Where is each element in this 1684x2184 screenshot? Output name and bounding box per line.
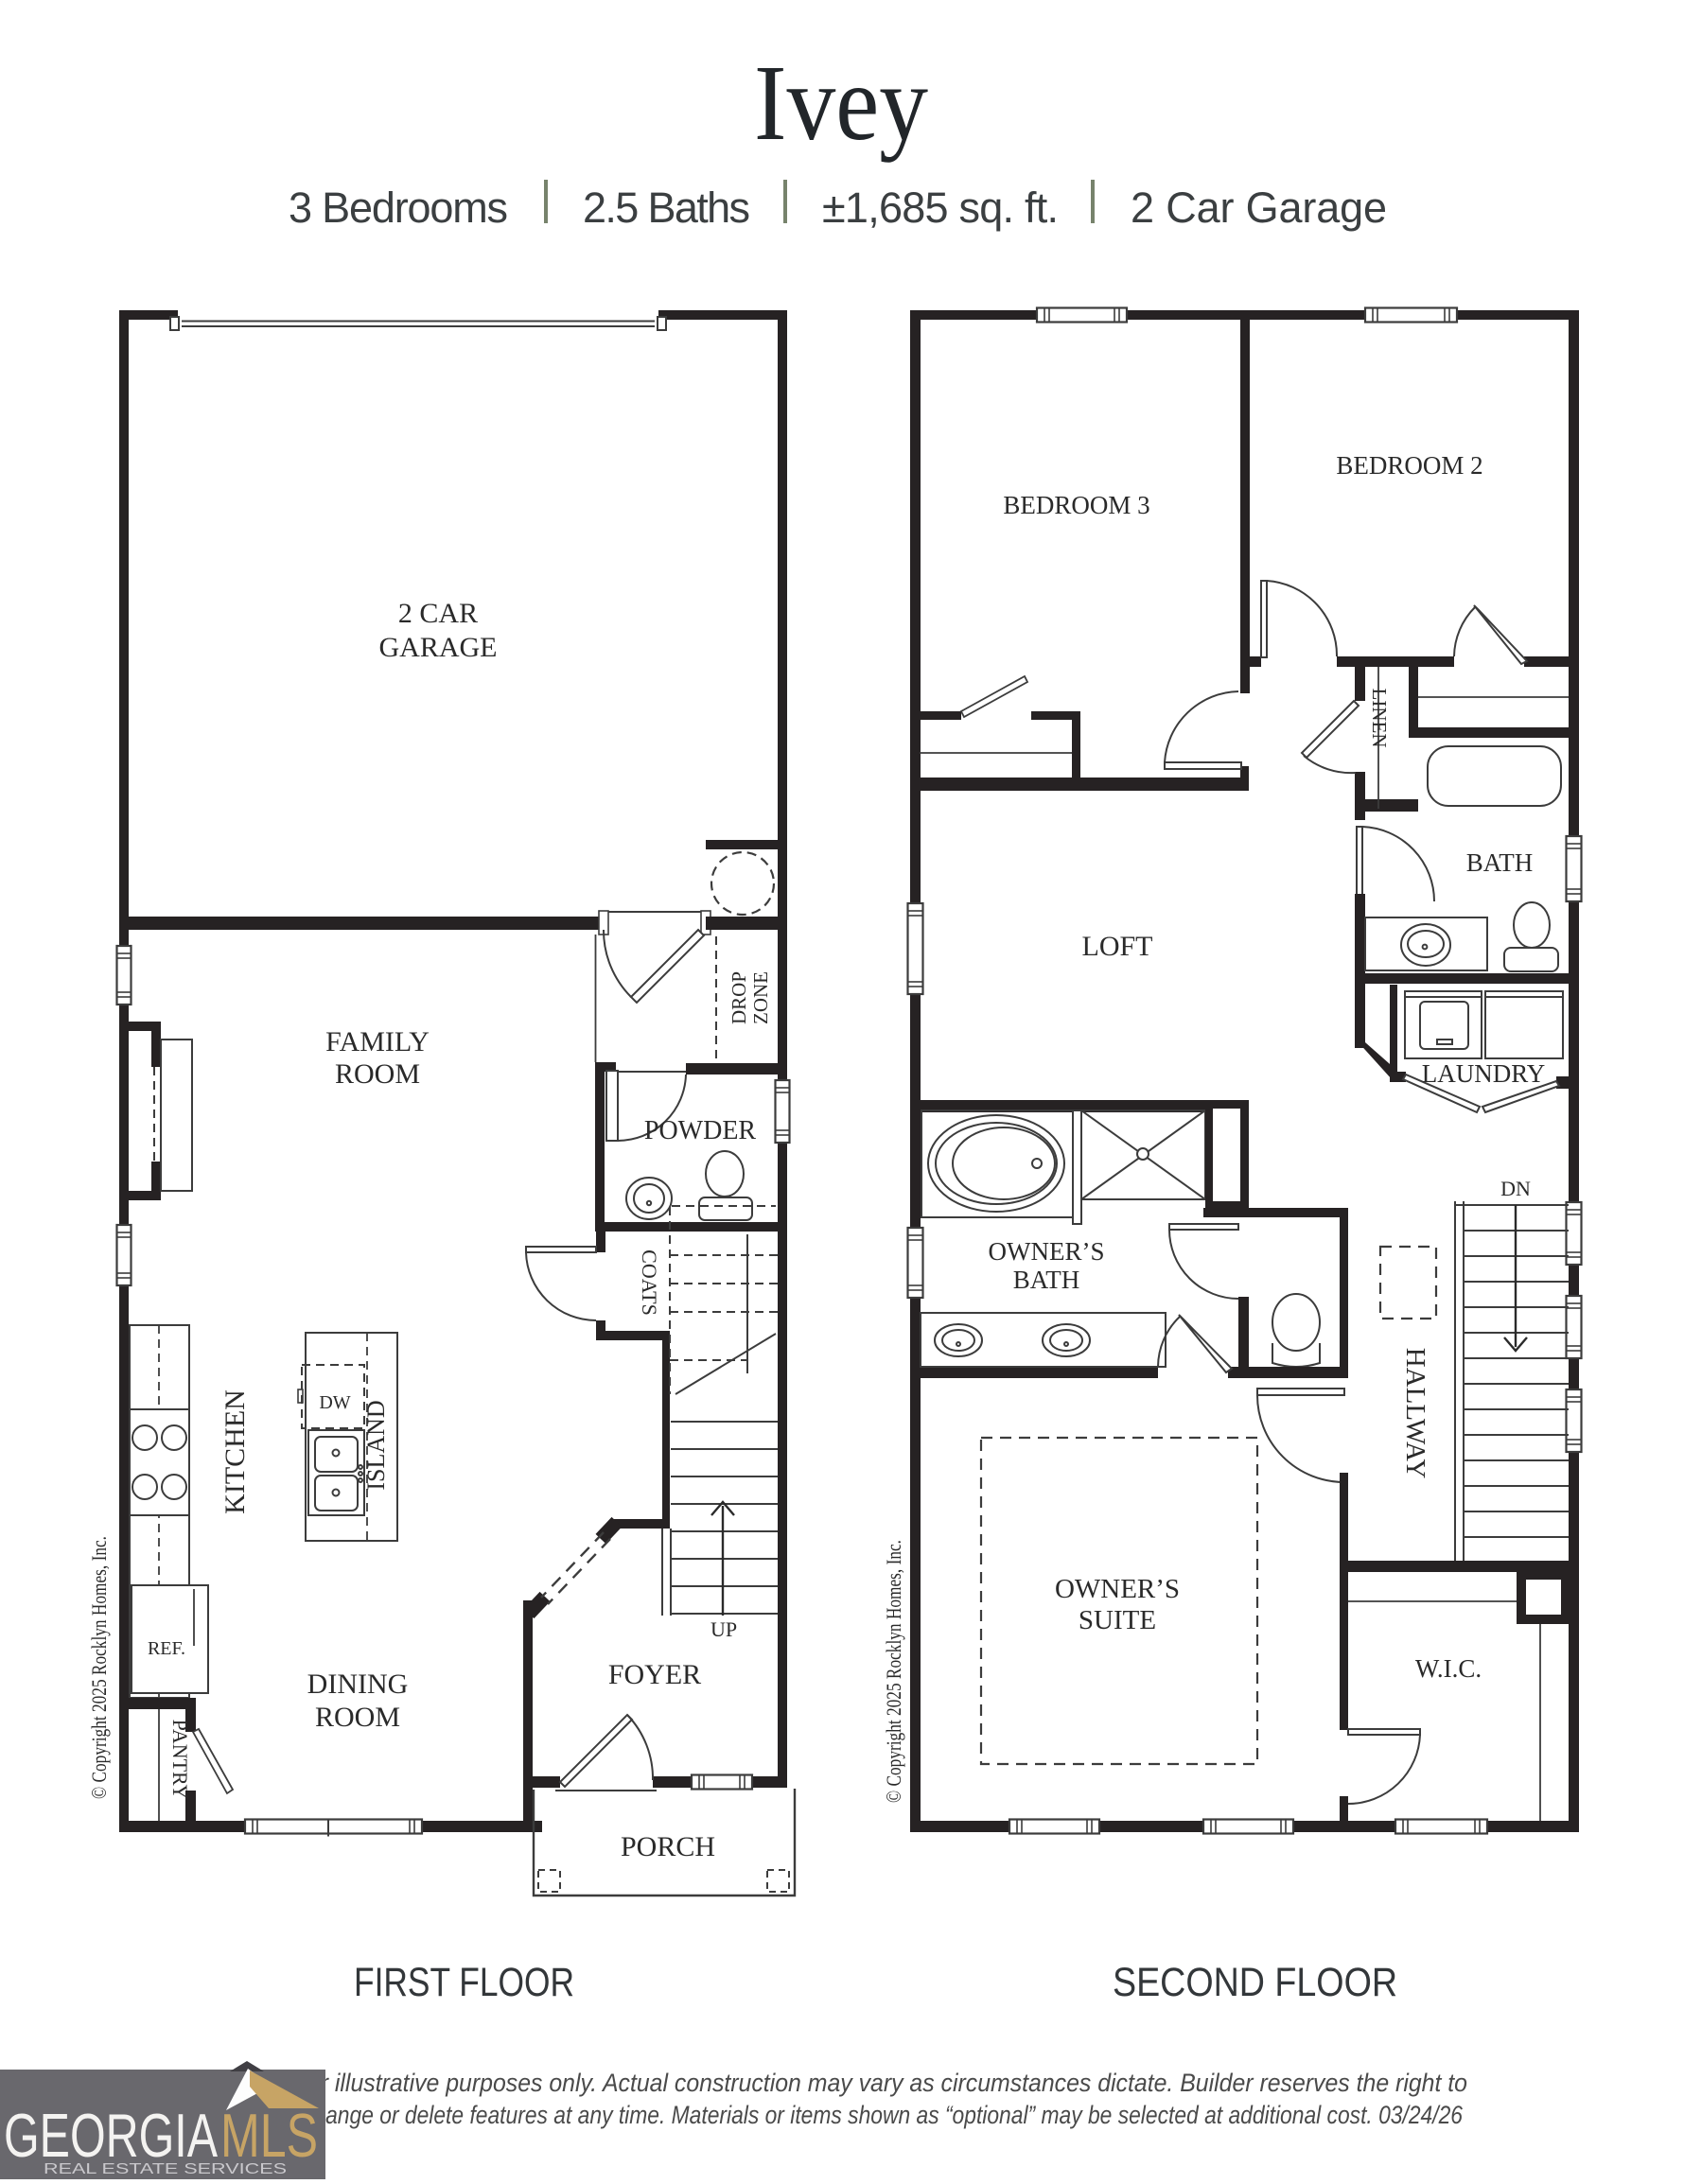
svg-text:BATH: BATH xyxy=(1013,1266,1080,1294)
svg-text:BEDROOM 3: BEDROOM 3 xyxy=(1003,491,1149,519)
svg-text:2 CAR: 2 CAR xyxy=(398,598,478,629)
svg-text:PORCH: PORCH xyxy=(621,1831,715,1862)
svg-text:PANTRY: PANTRY xyxy=(168,1720,192,1800)
svg-text:HALLWAY: HALLWAY xyxy=(1400,1348,1430,1479)
svg-text:MLS: MLS xyxy=(220,2101,318,2170)
svg-text:© Copyright 2025 Rocklyn Homes: © Copyright 2025 Rocklyn Homes, Inc. xyxy=(882,1540,905,1803)
svg-text:2.5 Baths: 2.5 Baths xyxy=(583,183,750,232)
svg-text:OWNER’S: OWNER’S xyxy=(1055,1574,1180,1604)
svg-text:OWNER’S: OWNER’S xyxy=(989,1237,1105,1266)
svg-text:DINING: DINING xyxy=(307,1669,409,1700)
svg-text:KITCHEN: KITCHEN xyxy=(219,1389,251,1514)
svg-text:Ivey: Ivey xyxy=(754,43,928,163)
svg-text:GEORGIA: GEORGIA xyxy=(4,2101,218,2170)
svg-text:REAL ESTATE SERVICES: REAL ESTATE SERVICES xyxy=(44,2161,287,2177)
svg-text:±1,685 sq. ft.: ±1,685 sq. ft. xyxy=(822,183,1059,232)
svg-text:FIRST FLOOR: FIRST FLOOR xyxy=(354,1960,574,2005)
svg-text:DN: DN xyxy=(1500,1177,1531,1200)
svg-text:© Copyright 2025 Rocklyn Homes: © Copyright 2025 Rocklyn Homes, Inc. xyxy=(87,1536,111,1799)
svg-text:ZONE: ZONE xyxy=(749,971,772,1024)
svg-text:DW: DW xyxy=(319,1392,350,1413)
svg-text:COATS: COATS xyxy=(638,1249,661,1316)
svg-text:POWDER: POWDER xyxy=(644,1116,757,1145)
svg-text:REF.: REF. xyxy=(148,1638,185,1659)
svg-text:FAMILY: FAMILY xyxy=(325,1026,430,1057)
svg-text:for illustrative purposes only: for illustrative purposes only. Actual c… xyxy=(301,2069,1467,2097)
svg-text:FOYER: FOYER xyxy=(608,1659,701,1690)
svg-text:BEDROOM 2: BEDROOM 2 xyxy=(1336,451,1482,480)
svg-text:DROP: DROP xyxy=(728,971,750,1024)
svg-text:2 Car Garage: 2 Car Garage xyxy=(1131,183,1387,232)
svg-text:ROOM: ROOM xyxy=(335,1058,420,1090)
svg-text:SUITE: SUITE xyxy=(1079,1605,1156,1635)
svg-text:ISLAND: ISLAND xyxy=(362,1400,390,1490)
svg-text:3 Bedrooms: 3 Bedrooms xyxy=(289,183,508,232)
svg-text:SECOND FLOOR: SECOND FLOOR xyxy=(1113,1960,1397,2005)
svg-text:BATH: BATH xyxy=(1466,848,1534,877)
svg-text:UP: UP xyxy=(710,1617,737,1641)
svg-text:ROOM: ROOM xyxy=(315,1702,400,1733)
svg-text:LINEN: LINEN xyxy=(1368,689,1391,748)
svg-text:GARAGE: GARAGE xyxy=(379,632,498,663)
svg-text:change or delete features at a: change or delete features at any time. M… xyxy=(303,2101,1464,2129)
svg-text:LOFT: LOFT xyxy=(1082,931,1153,962)
svg-text:W.I.C.: W.I.C. xyxy=(1415,1654,1482,1683)
svg-text:LAUNDRY: LAUNDRY xyxy=(1422,1059,1546,1088)
